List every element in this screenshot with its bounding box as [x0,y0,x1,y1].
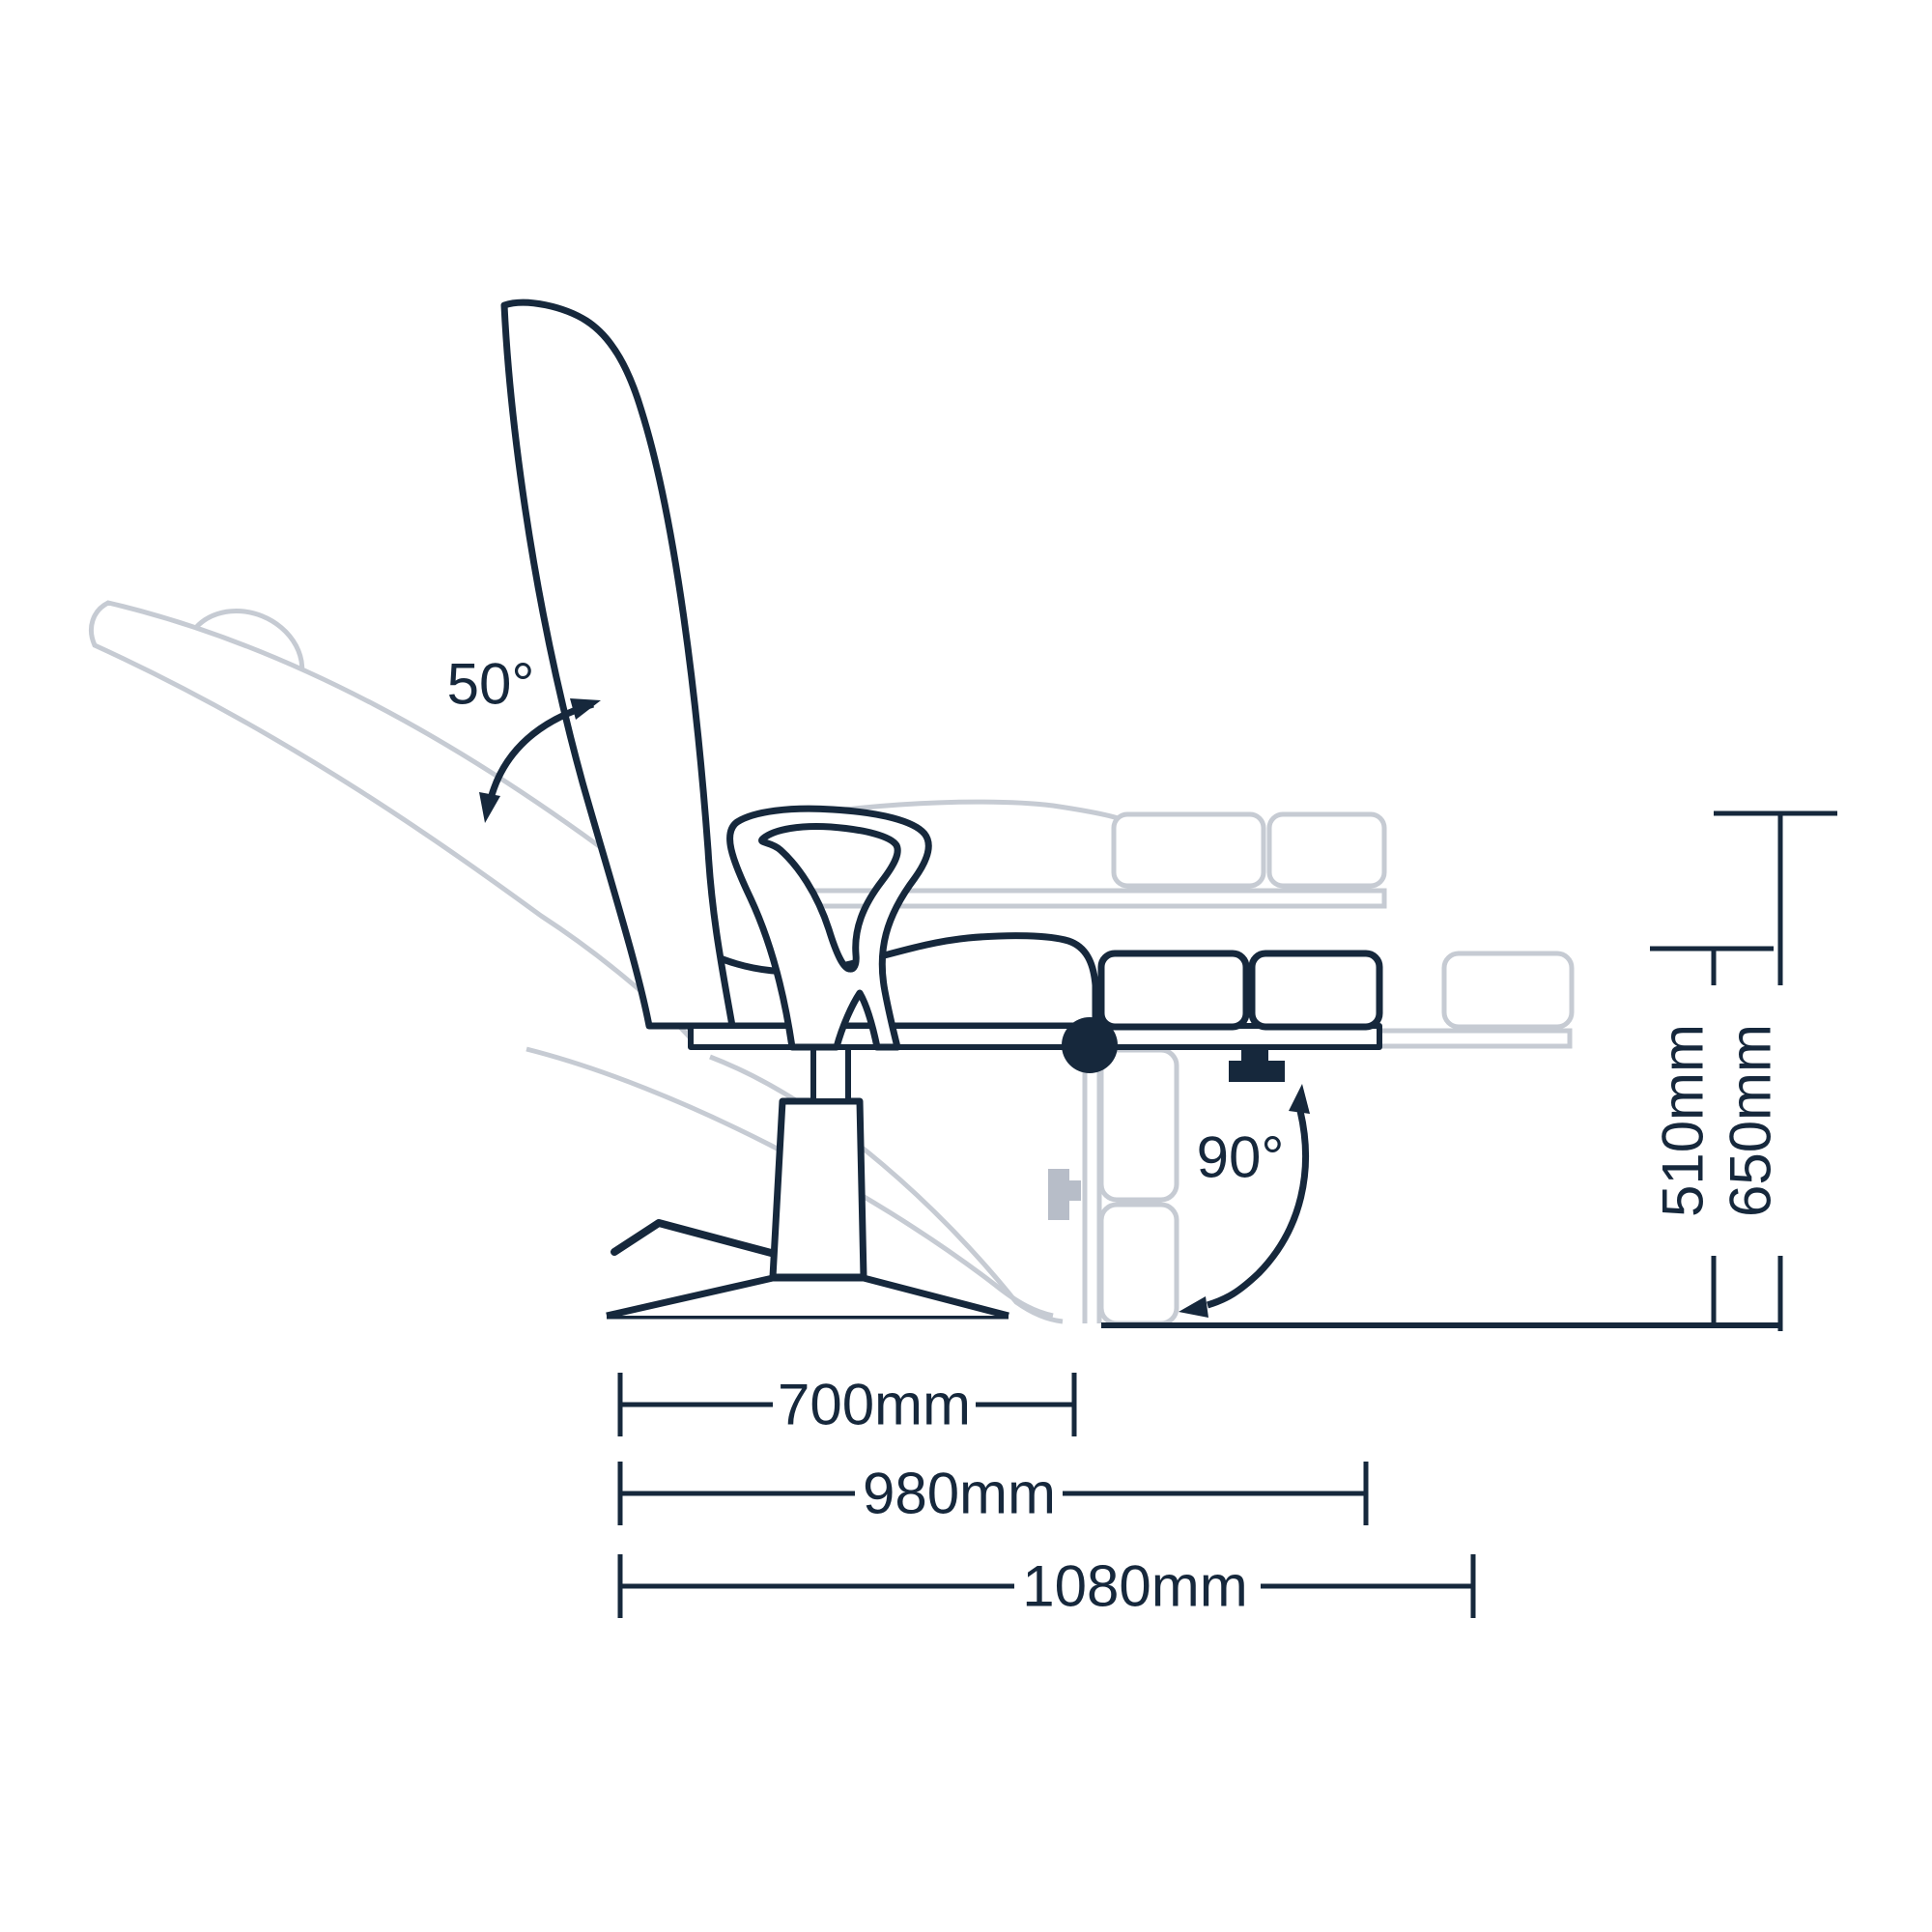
dimension-700mm: 700mm [620,1373,1074,1437]
height-low-label: 510mm [1651,1024,1716,1217]
backrest [504,302,732,1026]
pedestal-column [773,1101,864,1277]
ghost-extension-cushion [1444,953,1572,1027]
pedestal-base-cone [607,1278,1009,1316]
width-full-label: 1080mm [1022,1554,1247,1619]
width-dimensions: 700mm 980mm 1080mm [620,1373,1473,1619]
legrest-cushion-1 [1101,953,1246,1027]
legrest-cushion-2 [1252,953,1379,1027]
ghost-legrest-cushion-upper [1101,1050,1177,1200]
ghost-raised-cushion-2 [1269,814,1384,886]
dimension-1080mm: 1080mm [620,1554,1473,1619]
ghost-legrest-knob [1048,1169,1081,1220]
dimension-980mm: 980mm [620,1462,1366,1526]
pedestal-stem [813,1047,848,1101]
height-dimensions: 510mm 650mm [1650,813,1837,1331]
diagram-canvas: 50° 90° 700mm 980mm 1080mm [0,0,1932,1932]
legrest-angle-label: 90° [1197,1125,1285,1190]
ghost-raised-cushion-1 [1114,814,1264,886]
width-base-label: 700mm [778,1373,971,1437]
chair-dimension-diagram: 50° 90° 700mm 980mm 1080mm [0,0,1932,1932]
foot-pedal [614,1223,775,1254]
dimension-650mm: 650mm [1714,813,1837,1331]
height-high-label: 650mm [1719,1024,1783,1217]
ghost-legrest-cushion-lower [1101,1205,1177,1323]
legrest-bracket [1229,1046,1285,1082]
backrest-angle-label: 50° [447,652,535,717]
pivot-dot [1062,1017,1118,1073]
arrow-up-icon [1289,1084,1310,1114]
arrow-left-icon [1179,1296,1208,1318]
ghost-extension-platform [1379,1031,1570,1046]
width-mid-label: 980mm [863,1462,1056,1526]
